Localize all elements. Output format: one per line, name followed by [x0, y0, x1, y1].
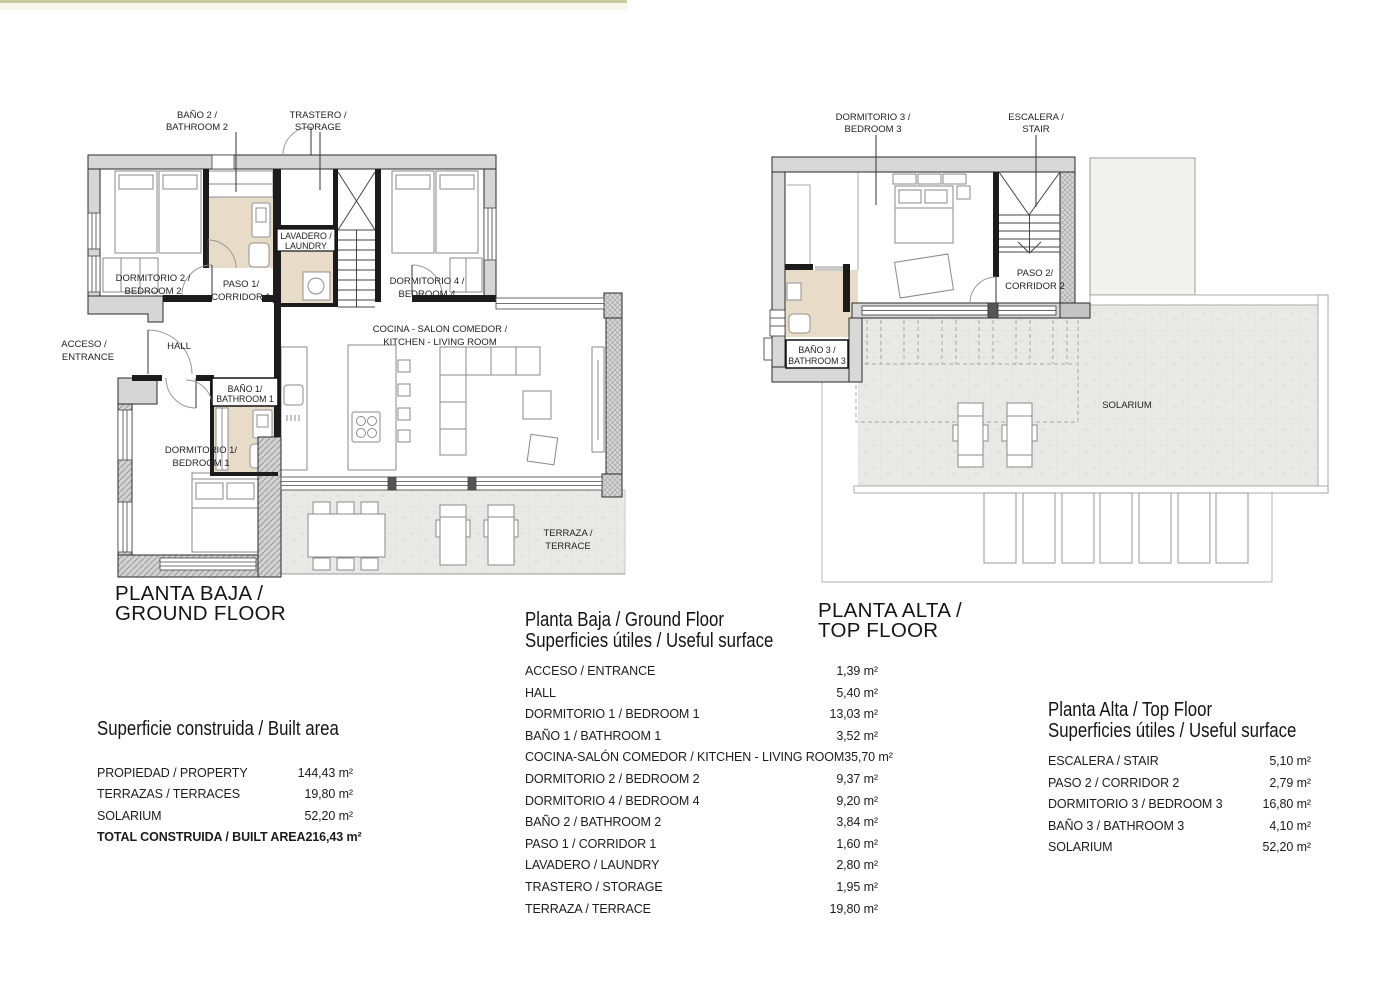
built-area-table: Superficie construida / Built area PROPI…: [97, 719, 353, 852]
top-floor-plan: DORMITORIO 3 / BEDROOM 3 ESCALERA / STAI…: [755, 95, 1390, 595]
svg-text:BATHROOM 2: BATHROOM 2: [166, 122, 228, 133]
bathroom2-callout: BAÑO 2 /: [177, 110, 217, 121]
bedroom1-label: DORMITORIO 1/: [165, 445, 237, 456]
top-staircase: [999, 172, 1060, 253]
svg-text:BATHROOM 3: BATHROOM 3: [788, 356, 846, 366]
bathroom1-label: BAÑO 1/: [228, 384, 263, 394]
svg-text:BEDROOM 3: BEDROOM 3: [844, 124, 901, 135]
table-row: ESCALERA / STAIR 5,10 m²: [1048, 754, 1311, 776]
laundry-label: LAVADERO /: [280, 231, 332, 241]
table-row: TRASTERO / STORAGE 1,95 m²: [525, 880, 878, 902]
svg-text:KITCHEN - LIVING ROOM: KITCHEN - LIVING ROOM: [383, 337, 497, 348]
table-row: PASO 2 / CORRIDOR 2 2,79 m²: [1048, 776, 1311, 798]
bedroom3-callout: DORMITORIO 3 /: [836, 112, 911, 123]
table-row: TERRAZA / TERRACE 19,80 m²: [525, 902, 878, 924]
solarium-label: SOLARIUM: [1102, 400, 1152, 411]
living-room-furniture: [440, 347, 604, 465]
closet-lines: [787, 172, 858, 270]
table-row: DORMITORIO 4 / BEDROOM 4 9,20 m²: [525, 794, 878, 816]
ground-surface-rows: ACCESO / ENTRANCE 1,39 m² HALL 5,40 m² D…: [525, 664, 878, 923]
table-row: DORMITORIO 3 / BEDROOM 3 16,80 m²: [1048, 797, 1311, 819]
built-area-title: Superficie construida / Built area: [97, 719, 312, 740]
svg-text:TERRACE: TERRACE: [545, 541, 590, 552]
top-surface-title: Planta Alta / Top FloorSuperficies útile…: [1048, 700, 1269, 741]
roof-edge-area: [1090, 158, 1195, 295]
svg-text:CORRIDOR 1: CORRIDOR 1: [211, 292, 271, 303]
table-row: BAÑO 1 / BATHROOM 1 3,52 m²: [525, 729, 878, 751]
table-row: HALL 5,40 m²: [525, 686, 878, 708]
svg-text:BATHROOM 1: BATHROOM 1: [216, 394, 274, 404]
svg-text:STAIR: STAIR: [1022, 124, 1049, 135]
entrance-label: ACCESO /: [61, 339, 107, 350]
ground-floor-heading: PLANTA BAJA /GROUND FLOOR: [115, 584, 286, 623]
laundry-appliances: [303, 272, 330, 300]
storage-callout: TRASTERO /: [289, 110, 346, 121]
pergola-slats: [984, 493, 1248, 563]
table-row: PASO 1 / CORRIDOR 1 1,60 m²: [525, 837, 878, 859]
kitchen-furniture: [281, 345, 410, 470]
built-area-rows: PROPIEDAD / PROPERTY 144,43 m² TERRAZAS …: [97, 766, 353, 852]
corridor2-label: PASO 2/: [1017, 268, 1054, 279]
bedroom3-door-arc: [970, 277, 996, 303]
bedroom4-label: DORMITORIO 4 /: [390, 276, 465, 287]
terrace-dining-table-icon: [308, 502, 385, 570]
ground-surface-title: Planta Baja / Ground FloorSuperficies út…: [525, 610, 822, 651]
svg-text:STORAGE: STORAGE: [295, 122, 341, 133]
table-row: DORMITORIO 1 / BEDROOM 1 13,03 m²: [525, 707, 878, 729]
ground-floor-plan: BAÑO 2 / BATHROOM 2 TRASTERO / STORAGE D…: [55, 95, 700, 595]
svg-text:ENTRANCE: ENTRANCE: [62, 352, 114, 363]
hall-label: HALL: [167, 341, 191, 352]
bedroom3-furniture: [893, 174, 970, 298]
top-surface-rows: ESCALERA / STAIR 5,10 m² PASO 2 / CORRID…: [1048, 754, 1311, 862]
top-accent-cream-bar: [0, 3, 627, 10]
table-row: BAÑO 2 / BATHROOM 2 3,84 m²: [525, 815, 878, 837]
bath3-shelf: [815, 266, 843, 271]
staircase: [338, 172, 375, 307]
table-row: PROPIEDAD / PROPERTY 144,43 m²: [97, 766, 353, 788]
bedroom4-furniture: [392, 171, 482, 292]
svg-text:BEDROOM 2: BEDROOM 2: [124, 286, 181, 297]
top-surface-table: Planta Alta / Top FloorSuperficies útile…: [1048, 700, 1311, 862]
floorplan-sheet: BAÑO 2 / BATHROOM 2 TRASTERO / STORAGE D…: [0, 0, 1400, 991]
table-row: ACCESO / ENTRANCE 1,39 m²: [525, 664, 878, 686]
table-row: SOLARIUM 52,20 m²: [1048, 840, 1311, 862]
svg-text:BEDROOM 1: BEDROOM 1: [172, 458, 229, 469]
stair-callout: ESCALERA /: [1008, 112, 1064, 123]
table-row: COCINA-SALÓN COMEDOR / KITCHEN - LIVING …: [525, 750, 878, 772]
svg-text:LAUNDRY: LAUNDRY: [285, 241, 327, 251]
bedroom2-label: DORMITORIO 2 /: [116, 273, 191, 284]
bedroom1-bed-icon: [192, 473, 258, 552]
solarium-area: [858, 305, 1318, 486]
table-row: TOTAL CONSTRUIDA / BUILT AREA 216,43 m²: [97, 830, 353, 852]
ground-surface-table: Planta Baja / Ground FloorSuperficies út…: [525, 610, 878, 923]
table-row: LAVADERO / LAUNDRY 2,80 m²: [525, 858, 878, 880]
kitchen-living-label: COCINA - SALON COMEDOR /: [373, 324, 508, 335]
table-row: BAÑO 3 / BATHROOM 3 4,10 m²: [1048, 819, 1311, 841]
table-row: DORMITORIO 2 / BEDROOM 2 9,37 m²: [525, 772, 878, 794]
table-row: SOLARIUM 52,20 m²: [97, 809, 353, 831]
svg-text:CORRIDOR 2: CORRIDOR 2: [1005, 281, 1065, 292]
bathroom3-label: BAÑO 3 /: [798, 345, 836, 355]
svg-text:BEDROOM 4: BEDROOM 4: [398, 289, 455, 300]
corridor1-label: PASO 1/: [223, 279, 260, 290]
table-row: TERRAZAS / TERRACES 19,80 m²: [97, 787, 353, 809]
terrace-label: TERRAZA /: [543, 528, 592, 539]
